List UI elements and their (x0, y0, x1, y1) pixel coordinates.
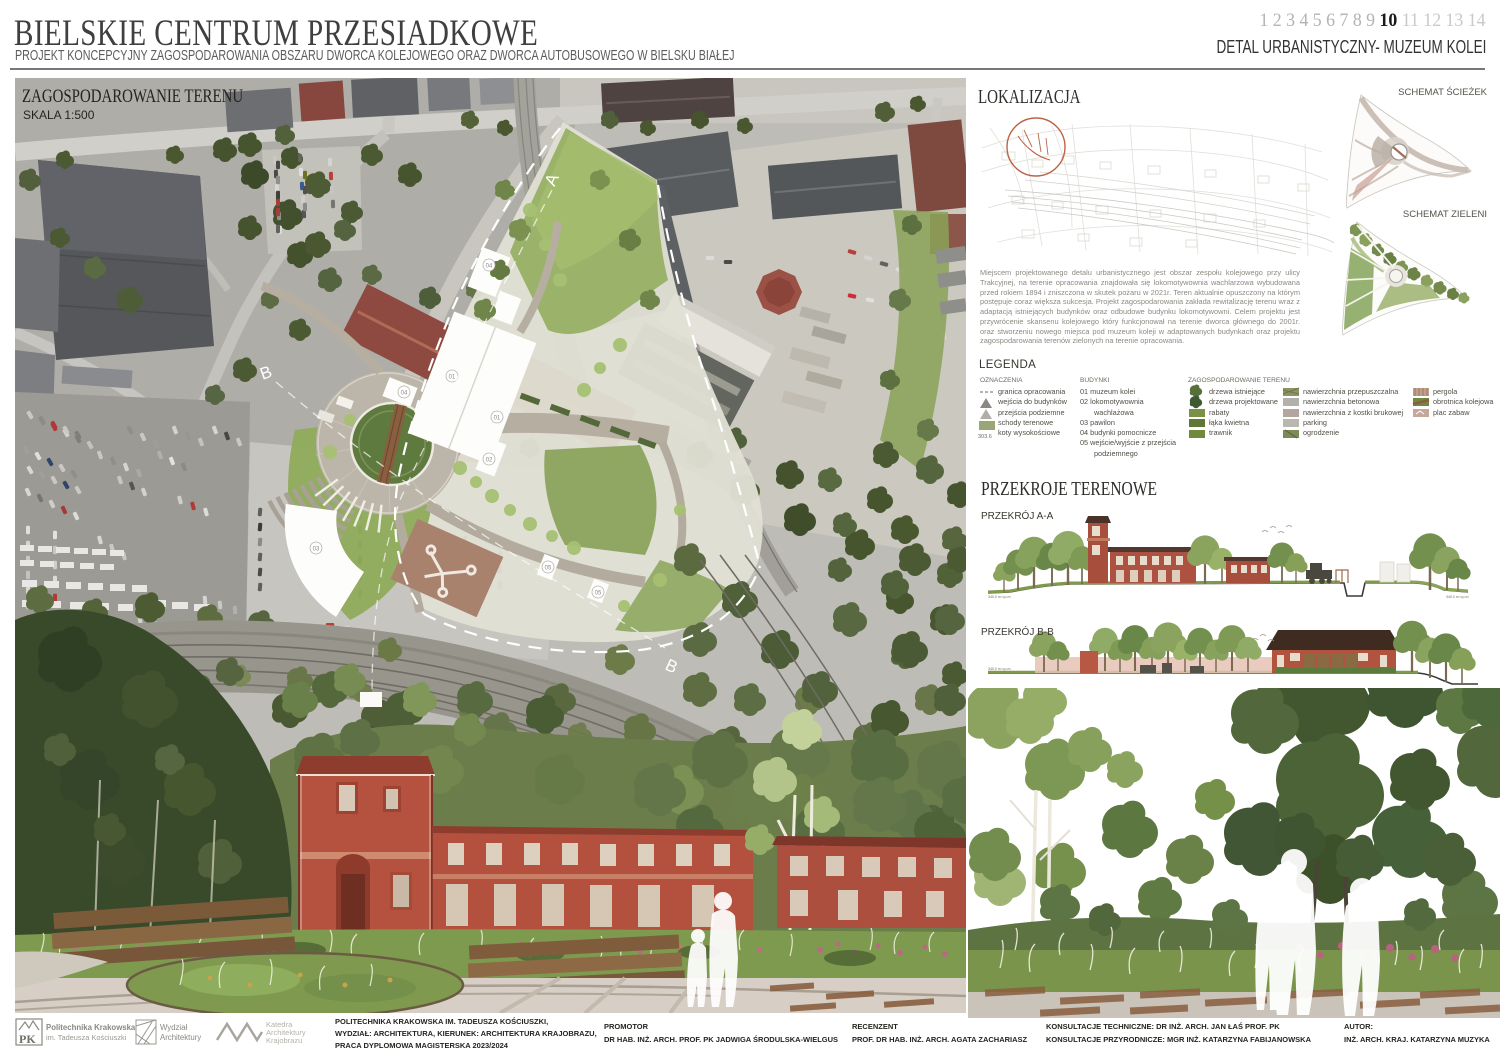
svg-text:03: 03 (313, 547, 320, 553)
svg-text:Politechnika Krakowska: Politechnika Krakowska (46, 1023, 136, 1032)
svg-text:340.0 m n.p.m.: 340.0 m n.p.m. (988, 595, 1011, 599)
svg-text:04: 04 (401, 391, 408, 397)
svg-text:PK: PK (19, 1032, 36, 1046)
svg-text:Architektury: Architektury (160, 1033, 201, 1042)
svg-text:im. Tadeusza Kościuszki: im. Tadeusza Kościuszki (46, 1033, 127, 1042)
svg-text:04: 04 (486, 264, 493, 270)
svg-text:02: 02 (486, 458, 493, 464)
svg-text:01: 01 (494, 416, 501, 422)
svg-text:303.6: 303.6 (978, 434, 992, 440)
svg-text:01: 01 (449, 375, 456, 381)
svg-text:05: 05 (595, 591, 602, 597)
svg-text:05: 05 (545, 566, 552, 572)
svg-text:Krajobrazu: Krajobrazu (266, 1036, 302, 1045)
svg-text:340.0 m n.p.m.: 340.0 m n.p.m. (988, 667, 1011, 671)
svg-text:340.0 m n.p.m.: 340.0 m n.p.m. (1446, 595, 1469, 599)
svg-text:Wydział: Wydział (160, 1023, 187, 1032)
